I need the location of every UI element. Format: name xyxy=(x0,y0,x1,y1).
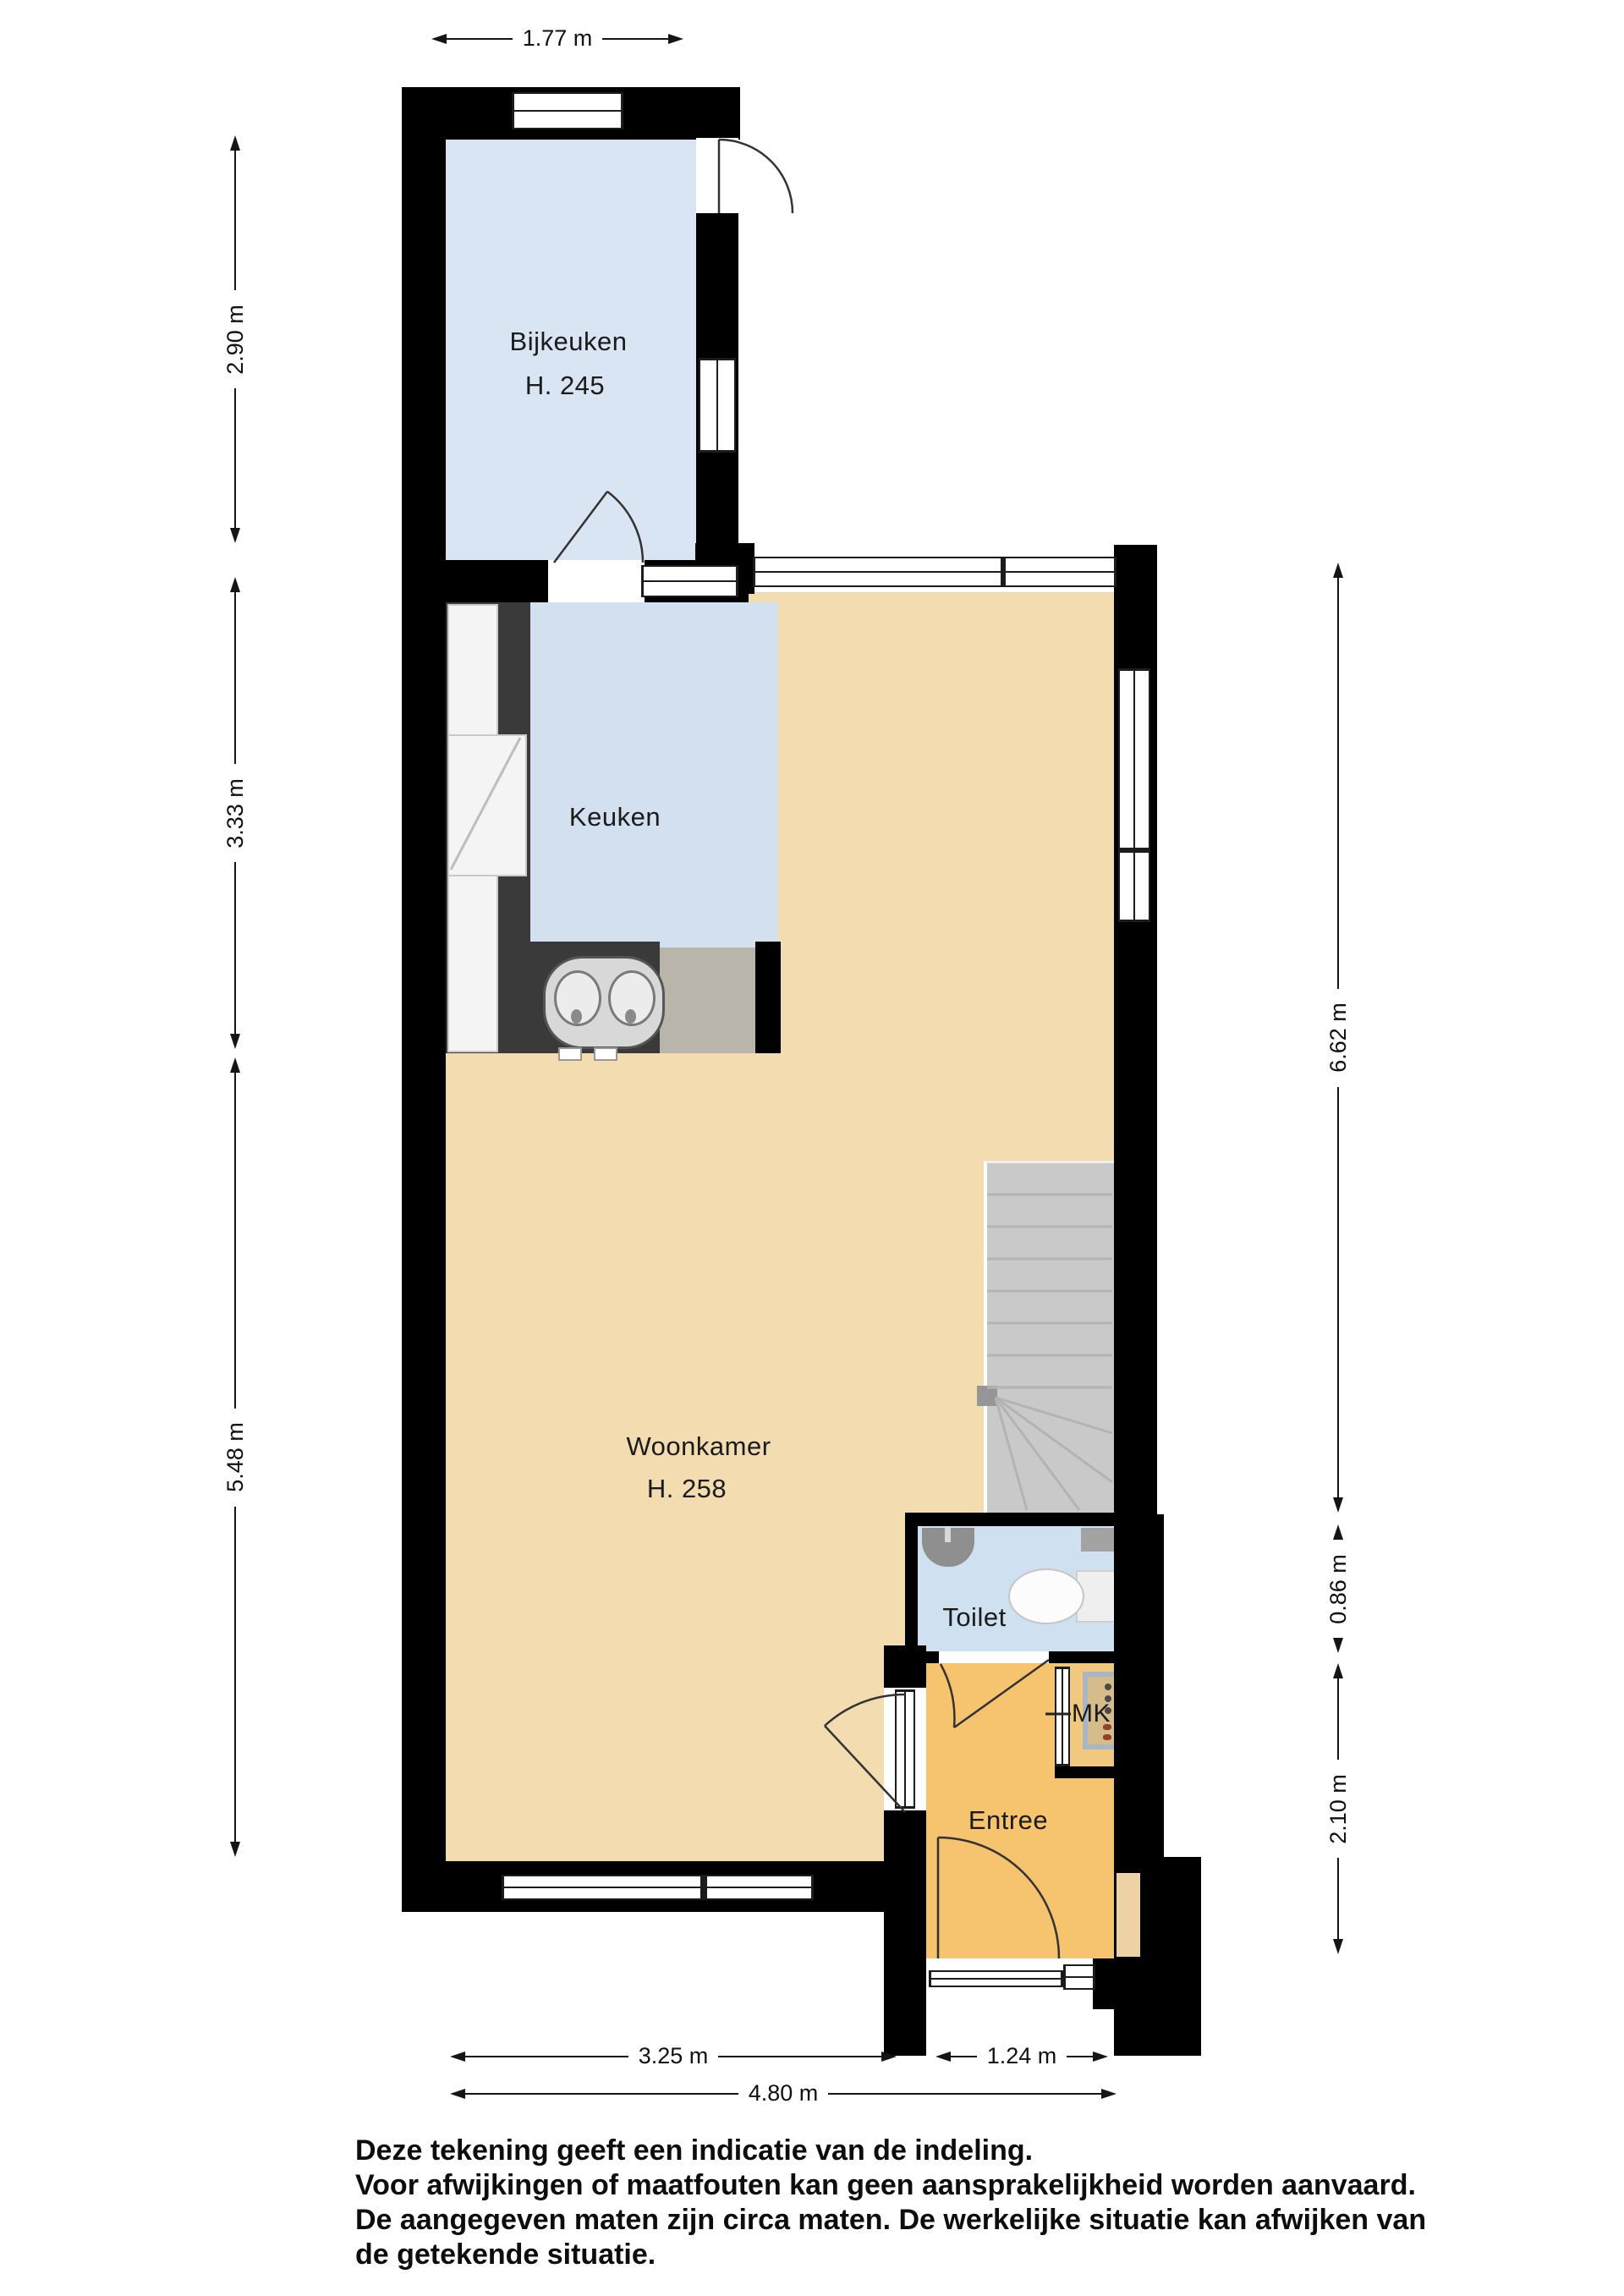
kitchen-cabinet-bottom xyxy=(447,875,498,1052)
entree-doorway-frame xyxy=(895,1689,915,1809)
arrow-right-icon xyxy=(881,2052,897,2062)
wall-mk-bottom xyxy=(1055,1766,1120,1778)
stove-knob-left xyxy=(571,1009,582,1024)
arrow-left-icon xyxy=(431,34,447,44)
disclaimer-line: Voor afwijkingen of maatfouten kan geen … xyxy=(355,2168,1556,2203)
disclaimer-line: Deze tekening geeft een indicatie van de… xyxy=(355,2134,1556,2168)
kitchen-stove xyxy=(543,956,665,1049)
bijkeuken-height-label: H. 245 xyxy=(525,371,605,401)
woonkamer-label: Woonkamer xyxy=(626,1431,771,1462)
dimension-left-middle: 3.33 m xyxy=(221,577,250,1049)
dimension-label: 0.86 m xyxy=(1325,1554,1352,1624)
kitchen-cabinet-top xyxy=(447,604,498,736)
mk-door xyxy=(1055,1667,1070,1766)
wall-toilet-left xyxy=(905,1513,918,1663)
window-mullion xyxy=(1118,848,1150,853)
arrow-down-icon xyxy=(230,528,240,543)
arrow-up-icon xyxy=(1333,1663,1343,1678)
wall-niche xyxy=(1116,1873,1140,1957)
stove-control-right xyxy=(594,1047,617,1061)
arrow-down-icon xyxy=(1333,1939,1343,1954)
kitchen-fridge xyxy=(447,734,527,876)
dimension-left-bottom: 5.48 m xyxy=(221,1057,250,1857)
staircase xyxy=(984,1161,1118,1514)
stove-knob-right xyxy=(625,1009,636,1024)
arrow-up-icon xyxy=(230,1057,240,1073)
keuken-wall-window xyxy=(641,565,738,597)
meter-dot-red xyxy=(1103,1734,1111,1740)
arrow-up-icon xyxy=(1333,1524,1343,1540)
arrow-right-icon xyxy=(1101,2089,1116,2099)
arrow-down-icon xyxy=(230,1034,240,1049)
dimension-label: 1.77 m xyxy=(513,25,603,52)
dimension-bottom-left: 3.25 m xyxy=(450,2043,897,2069)
arrow-down-icon xyxy=(1333,1638,1343,1653)
dimension-label: 5.48 m xyxy=(222,1422,249,1492)
arrow-up-icon xyxy=(1333,563,1343,578)
dimension-right-bottom: 2.10 m xyxy=(1324,1663,1352,1954)
disclaimer-line: De aangegeven maten zijn circa maten. De… xyxy=(355,2203,1556,2238)
woonkamer-right-window xyxy=(1118,668,1150,922)
dimension-bottom-total: 4.80 m xyxy=(450,2080,1116,2106)
woonkamer-top-window xyxy=(753,557,1116,587)
wall-toilet-top xyxy=(905,1513,1120,1526)
arrow-right-icon xyxy=(1093,2052,1108,2062)
dimension-right-middle: 0.86 m xyxy=(1324,1524,1352,1653)
kitchen-worktop-light xyxy=(660,948,755,1053)
dimension-bottom-right: 1.24 m xyxy=(935,2043,1108,2069)
wall-entree-front-right xyxy=(1093,1958,1201,2009)
bijkeuken-keuken-door-opening xyxy=(548,560,645,602)
arrow-left-icon xyxy=(450,2089,465,2099)
keuken-label: Keuken xyxy=(569,802,661,832)
arrow-right-icon xyxy=(668,34,683,44)
mk-label: MK xyxy=(1072,1700,1111,1728)
woonkamer-front-window xyxy=(502,1875,814,1900)
wall-right-outer-mid xyxy=(1114,1514,1164,1857)
dimension-label: 3.25 m xyxy=(628,2043,719,2069)
toilet-door-opening xyxy=(939,1651,1049,1663)
window-mullion xyxy=(700,1875,707,1900)
bijkeuken-label: Bijkeuken xyxy=(510,327,628,357)
dimension-right-top: 6.62 m xyxy=(1324,563,1352,1513)
dimension-top-width: 1.77 m xyxy=(431,25,683,52)
dimension-label: 4.80 m xyxy=(738,2080,829,2106)
arrow-up-icon xyxy=(230,577,240,592)
toilet-bowl xyxy=(1008,1568,1084,1624)
front-sidelight-window xyxy=(1063,1964,1095,1990)
entree-label: Entree xyxy=(968,1805,1048,1836)
wall-left-outer xyxy=(402,87,446,1912)
dimension-label: 2.10 m xyxy=(1325,1774,1352,1844)
stair-newel-post xyxy=(977,1386,997,1406)
bijkeuken-right-window xyxy=(699,358,736,453)
arrow-down-icon xyxy=(1333,1497,1343,1513)
woonkamer-height-label: H. 258 xyxy=(647,1474,727,1504)
arrow-left-icon xyxy=(935,2052,951,2062)
wall-keuken-stub xyxy=(755,942,781,1053)
disclaimer-line: de getekende situatie. xyxy=(355,2238,1556,2272)
dimension-label: 2.90 m xyxy=(222,305,249,375)
floor-plan-canvas: Bijkeuken H. 245 Keuken Woonkamer H. 258… xyxy=(0,0,1624,2296)
bijkeuken-backdoor-opening xyxy=(696,138,738,213)
dimension-label: 1.24 m xyxy=(977,2043,1067,2069)
arrow-down-icon xyxy=(230,1842,240,1857)
dimension-left-top: 2.90 m xyxy=(221,135,250,543)
bijkeuken-top-window xyxy=(512,92,623,129)
disclaimer-text: Deze tekening geeft een indicatie van de… xyxy=(355,2134,1556,2272)
basin-faucet xyxy=(945,1528,951,1542)
window-mullion xyxy=(1001,557,1006,587)
meter-dot xyxy=(1105,1684,1111,1690)
stove-control-left xyxy=(558,1047,582,1061)
arrow-up-icon xyxy=(230,135,240,151)
dimension-label: 3.33 m xyxy=(222,778,249,849)
arrow-left-icon xyxy=(450,2052,465,2062)
front-door-threshold xyxy=(929,1970,1063,1987)
toilet-label: Toilet xyxy=(942,1602,1006,1633)
dimension-label: 6.62 m xyxy=(1325,1002,1352,1073)
